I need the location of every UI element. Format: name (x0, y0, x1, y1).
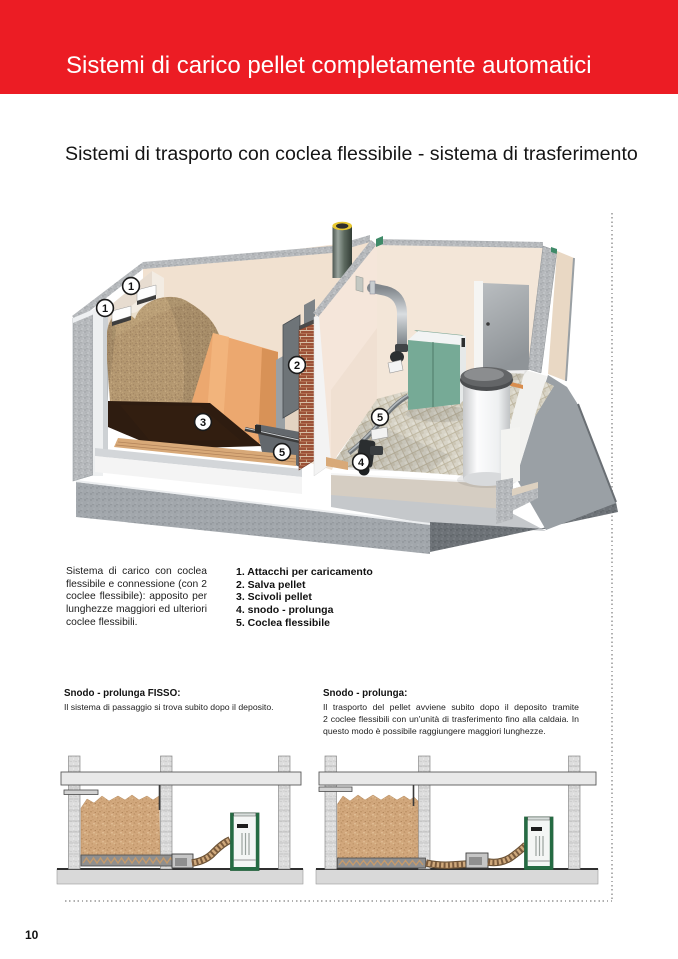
svg-text:5: 5 (377, 412, 383, 424)
svg-text:2: 2 (294, 360, 300, 372)
svg-text:3: 3 (200, 417, 206, 429)
svg-text:1: 1 (128, 281, 134, 293)
svg-text:5: 5 (279, 447, 285, 459)
svg-text:4: 4 (358, 457, 365, 469)
svg-text:1: 1 (102, 303, 108, 315)
